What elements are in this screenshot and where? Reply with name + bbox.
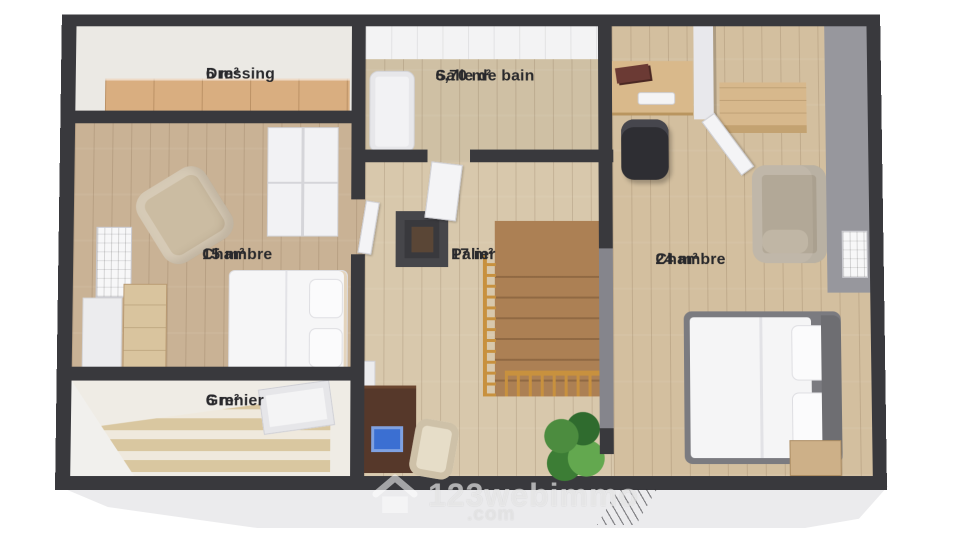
room-bathroom-shelf bbox=[366, 26, 613, 62]
office-chair bbox=[621, 119, 669, 179]
wall-bathroom-south-right bbox=[470, 150, 613, 163]
room-area: 17 m² bbox=[451, 245, 493, 265]
room-area: 24 m² bbox=[655, 250, 698, 270]
flue bbox=[411, 227, 433, 253]
desk-chambre24 bbox=[612, 61, 693, 115]
duvet-fold bbox=[285, 271, 288, 380]
partition-wall-chambre24 bbox=[693, 26, 713, 119]
dresser-chambre15 bbox=[122, 284, 167, 375]
bed-chambre15 bbox=[228, 270, 348, 381]
bed-pillow bbox=[309, 328, 343, 368]
stair-rail-left bbox=[483, 255, 496, 396]
wall-right-divider-upper bbox=[598, 26, 613, 248]
sofa bbox=[752, 165, 827, 263]
wall-left-divider-lower bbox=[350, 254, 365, 476]
floor-plan-canvas: Dressing 6 m² Salle de bain 6,70 m² Cham… bbox=[55, 15, 887, 490]
cabinet-white-chambre15 bbox=[82, 298, 123, 377]
headboard bbox=[821, 315, 843, 460]
desk-keyboard bbox=[638, 92, 676, 105]
alcove-cabinet bbox=[719, 82, 806, 133]
wardrobe-chambre15 bbox=[267, 127, 339, 236]
wall-right-divider-mid bbox=[599, 248, 614, 428]
bed-pillow bbox=[309, 279, 343, 318]
floor-plan-image: Dressing 6 m² Salle de bain 6,70 m² Cham… bbox=[0, 0, 960, 540]
nightstand bbox=[789, 440, 841, 476]
stair-rail-bottom bbox=[505, 371, 601, 397]
wall-right-divider-lower bbox=[600, 428, 614, 454]
palier-desk bbox=[358, 386, 416, 474]
radiator-chambre24 bbox=[842, 231, 868, 278]
room-area: 6,70 m² bbox=[436, 67, 492, 87]
sofa-cushion bbox=[762, 230, 808, 254]
room-area: 6 m² bbox=[206, 65, 239, 85]
desk-books bbox=[615, 64, 650, 84]
house-icon bbox=[368, 468, 422, 522]
bathtub bbox=[369, 71, 415, 153]
watermark-tld: .com bbox=[467, 504, 515, 526]
watermark-brand: 123webimmo bbox=[428, 477, 639, 514]
room-area: 6 m² bbox=[206, 391, 240, 412]
room-area: 15 m² bbox=[202, 245, 245, 265]
laptop bbox=[371, 426, 403, 452]
wall-chambre15-south bbox=[72, 367, 365, 381]
wall-dressing-south bbox=[75, 111, 365, 124]
wall-left-divider-upper bbox=[351, 26, 366, 199]
wall-bathroom-south-left bbox=[365, 150, 427, 163]
